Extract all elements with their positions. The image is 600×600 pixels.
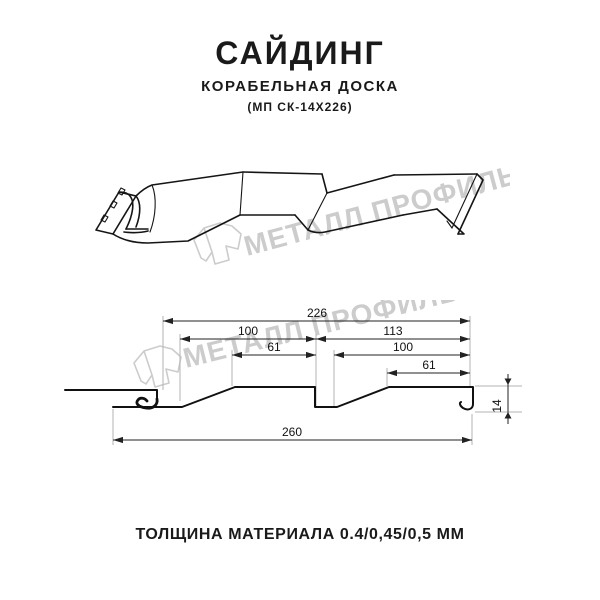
dim-label-100-left: 100	[238, 324, 258, 338]
cross-section-drawing: МЕТАЛЛ ПРОФИЛЬ 226 100 113	[30, 300, 575, 465]
product-subtitle: КОРАБЕЛЬНАЯ ДОСКА	[0, 78, 600, 95]
dim-label-260: 260	[282, 425, 302, 439]
dim-label-61-right: 61	[422, 358, 436, 372]
dim-label-113: 113	[383, 324, 402, 338]
product-code: (МП СК-14Х226)	[0, 100, 600, 114]
dim-label-61-left: 61	[267, 340, 281, 354]
product-drawing-page: { "header": { "title": "САЙДИНГ", "subti…	[0, 0, 600, 600]
dim-label-226: 226	[307, 306, 327, 320]
material-thickness-note: ТОЛЩИНА МАТЕРИАЛА 0.4/0,45/0,5 ММ	[0, 526, 600, 544]
watermark-logo-icon	[134, 346, 181, 387]
dim-label-100-right: 100	[393, 340, 413, 354]
lock-fold	[119, 192, 133, 229]
profile-3d-drawing: МЕТАЛЛ ПРОФИЛЬ	[60, 152, 510, 277]
page-title: САЙДИНГ	[0, 36, 600, 71]
nail-strip	[96, 192, 136, 234]
dimension-lines	[113, 321, 512, 440]
watermark-logo-icon	[194, 223, 241, 264]
dim-label-14: 14	[490, 399, 504, 413]
profile-outline	[65, 387, 473, 409]
header: САЙДИНГ КОРАБЕЛЬНАЯ ДОСКА (МП СК-14Х226)	[0, 36, 600, 114]
